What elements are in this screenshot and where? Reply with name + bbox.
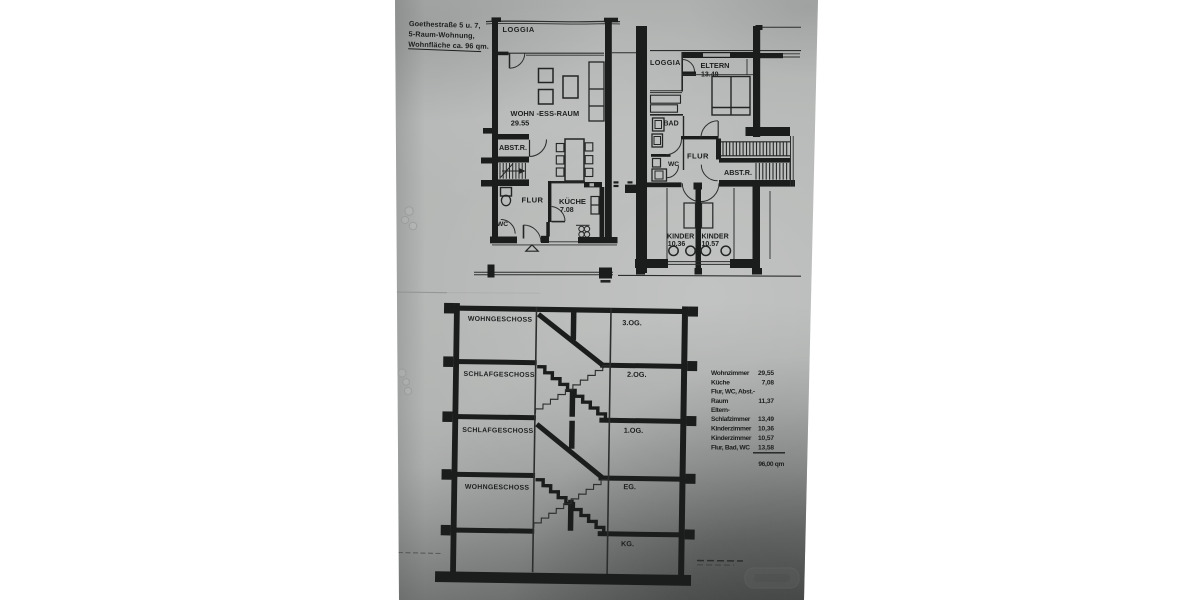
svg-text:7.08: 7.08	[560, 207, 574, 214]
svg-text:WC: WC	[497, 221, 508, 228]
svg-text:11,37: 11,37	[758, 398, 774, 405]
svg-text:29,55: 29,55	[758, 370, 774, 377]
svg-text:KINDER: KINDER	[702, 232, 729, 240]
svg-text:KINDER: KINDER	[667, 232, 694, 240]
svg-text:Flur, Bad, WC: Flur, Bad, WC	[711, 444, 750, 451]
svg-text:7,08: 7,08	[762, 379, 775, 386]
svg-text:13,49: 13,49	[758, 416, 774, 423]
svg-text:KÜCHE: KÜCHE	[559, 197, 586, 206]
svg-text:3.OG.: 3.OG.	[622, 318, 642, 327]
svg-text:WOHN -ESS-RAUM: WOHN -ESS-RAUM	[511, 109, 580, 118]
svg-text:ABST.R.: ABST.R.	[724, 168, 752, 177]
svg-text:WC: WC	[668, 161, 679, 168]
svg-text:10,36: 10,36	[758, 426, 774, 433]
svg-text:1.OG.: 1.OG.	[624, 426, 644, 435]
svg-text:Schlafzimmer: Schlafzimmer	[711, 416, 751, 423]
svg-text:Kinderzimmer: Kinderzimmer	[711, 426, 752, 433]
svg-text:EG.: EG.	[623, 482, 636, 491]
svg-text:ELTERN: ELTERN	[701, 61, 730, 70]
svg-text:10,57: 10,57	[758, 435, 774, 442]
svg-text:KG.: KG.	[621, 539, 634, 548]
svg-text:WOHNGESCHOSS: WOHNGESCHOSS	[468, 316, 533, 324]
svg-text:Raum: Raum	[711, 398, 728, 405]
svg-text:96,00 qm: 96,00 qm	[758, 461, 784, 468]
svg-text:Küche: Küche	[711, 379, 730, 386]
svg-text:Flur, WC, Abst.-: Flur, WC, Abst.-	[711, 389, 755, 396]
svg-text:13,58: 13,58	[758, 444, 774, 451]
svg-text:5-Raum-Wohnung,: 5-Raum-Wohnung,	[408, 29, 474, 40]
svg-text:FLUR: FLUR	[687, 152, 709, 161]
svg-text:2.OG.: 2.OG.	[627, 370, 647, 379]
svg-text:BAD: BAD	[664, 121, 679, 128]
svg-text:Wohnzimmer: Wohnzimmer	[711, 370, 750, 377]
svg-text:FLUR: FLUR	[522, 196, 544, 205]
svg-text:29.55: 29.55	[511, 118, 530, 127]
svg-text:ABST.R.: ABST.R.	[499, 143, 527, 152]
svg-text:LOGGIA: LOGGIA	[503, 25, 535, 34]
svg-text:LOGGIA: LOGGIA	[650, 58, 681, 67]
svg-text:Kinderzimmer: Kinderzimmer	[711, 435, 752, 442]
svg-text:SCHLAFGESCHOSS: SCHLAFGESCHOSS	[463, 371, 534, 379]
svg-text:WOHNGESCHOSS: WOHNGESCHOSS	[465, 484, 530, 492]
svg-text:Eltern-: Eltern-	[711, 407, 730, 414]
svg-text:SCHLAFGESCHOSS: SCHLAFGESCHOSS	[462, 427, 533, 435]
